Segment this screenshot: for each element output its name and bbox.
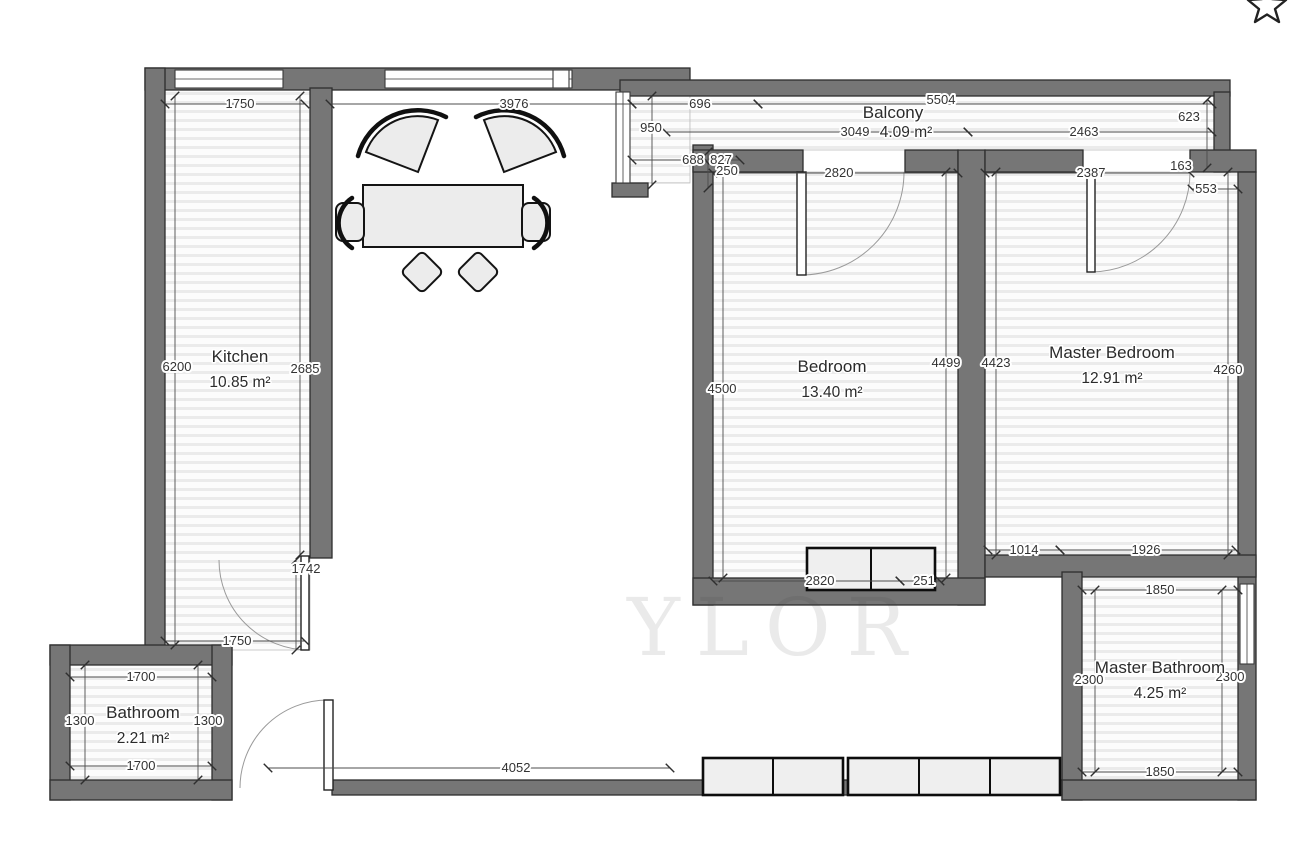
kitchen-label: Kitchen <box>212 347 269 366</box>
dim-bath-top: 1700 <box>127 669 156 684</box>
dim-master-inset: 553 <box>1195 181 1217 196</box>
master-bathroom-area: 4.25 m² <box>1134 685 1187 702</box>
watermark-text: YLOR <box>626 581 923 674</box>
chair-small-left <box>401 251 443 293</box>
master-bedroom-door-leaf <box>1087 172 1095 272</box>
balcony-area: 4.09 m² <box>880 124 933 141</box>
dim-master-right: 4260 <box>1214 362 1243 377</box>
dim-master-jog: 163 <box>1170 158 1192 173</box>
wall-topright-jog <box>1190 150 1256 172</box>
wall-between-bedrooms <box>958 150 985 605</box>
dim-bedroom-left: 4500 <box>708 381 737 396</box>
entrance-door-leaf <box>324 700 333 790</box>
master-bathroom-label: Master Bathroom <box>1095 658 1225 677</box>
bedroom-area: 13.40 m² <box>801 384 862 401</box>
balcony-label: Balcony <box>863 103 924 122</box>
dim-balcony-left-w: 696 <box>689 96 711 111</box>
dim-bedroom-right: 4499 <box>932 355 961 370</box>
dim-balcony-seg-right: 2463 <box>1070 124 1099 139</box>
dim-hall-w: 4052 <box>502 760 531 775</box>
master-bedroom-area: 12.91 m² <box>1081 370 1142 387</box>
dim-master-bottom-right: 1926 <box>1132 542 1161 557</box>
wall-kitchen-right <box>310 88 332 558</box>
wall-balcony-top <box>620 80 1230 96</box>
dim-master-left: 4423 <box>982 355 1011 370</box>
wall-bedroom-left <box>693 145 713 605</box>
wall-right <box>1238 172 1256 800</box>
dim-kitchen-top: 1750 <box>226 96 255 111</box>
dim-bath-left: 1300 <box>66 713 95 728</box>
dim-balcony-total: 5504 <box>927 92 956 107</box>
bedroom-label: Bedroom <box>798 357 867 376</box>
wall-bath-bottom <box>50 780 232 800</box>
favorite-star-icon[interactable] <box>1248 0 1286 22</box>
hall-wardrobe-2 <box>848 758 1060 795</box>
dim-closet-w: 2820 <box>806 573 835 588</box>
chair-small-right <box>457 251 499 293</box>
dim-bath-right: 1300 <box>194 713 223 728</box>
dim-bath-bottom: 1700 <box>127 758 156 773</box>
dim-balcony-seg-left: 3049 <box>841 124 870 139</box>
dim-balcony-left-h: 950 <box>640 120 662 135</box>
wall-mbath-bottom <box>1062 780 1256 800</box>
bedroom-door-leaf <box>797 172 806 275</box>
dim-master-top: 2387 <box>1077 165 1106 180</box>
master-bedroom-floor <box>985 172 1238 555</box>
dim-kitchen-right: 2685 <box>291 361 320 376</box>
balcony-floor-left <box>630 92 690 183</box>
dining-table <box>363 185 523 247</box>
wall-balcony-stub <box>612 183 648 197</box>
dim-closet-d: 251 <box>913 573 935 588</box>
dim-jog-a: 688 <box>682 152 704 167</box>
dim-kitchen-door: 1742 <box>292 561 321 576</box>
dim-master-bottom-left: 1014 <box>1010 542 1039 557</box>
dim-kitchen-bottom: 1750 <box>223 633 252 648</box>
dim-bedroom-offset: 250 <box>716 163 738 178</box>
entrance-door-swing <box>240 700 328 788</box>
floor-plan-drawing: YLOR <box>0 0 1297 842</box>
dim-balcony-right-h: 623 <box>1178 109 1200 124</box>
dim-mbath-bottom: 1850 <box>1146 764 1175 779</box>
dim-kitchen-left: 6200 <box>163 359 192 374</box>
bathroom-label: Bathroom <box>106 703 180 722</box>
small-window <box>553 70 569 88</box>
dim-living-top: 3976 <box>500 96 529 111</box>
bathroom-area: 2.21 m² <box>117 730 170 747</box>
kitchen-area: 10.85 m² <box>209 374 270 391</box>
floor-plan-page: YLOR <box>0 0 1297 842</box>
dim-mbath-top: 1850 <box>1146 582 1175 597</box>
wall-bath-top <box>50 645 232 665</box>
master-bedroom-label: Master Bedroom <box>1049 343 1175 362</box>
wall-master-bottom <box>985 555 1256 577</box>
dim-bedroom-top: 2820 <box>825 165 854 180</box>
